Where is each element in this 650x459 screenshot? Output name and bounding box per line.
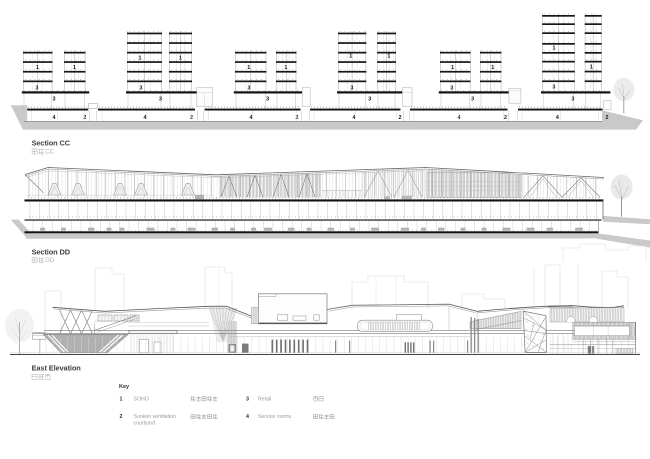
svg-text:Section CC: Section CC xyxy=(32,138,71,147)
svg-text:3: 3 xyxy=(351,85,354,91)
svg-text:1: 1 xyxy=(179,55,182,61)
svg-text:3: 3 xyxy=(53,96,56,102)
svg-text:2: 2 xyxy=(83,115,86,121)
svg-text:Retail: Retail xyxy=(258,396,271,402)
svg-text:1: 1 xyxy=(139,55,142,61)
svg-text:courtyard: courtyard xyxy=(134,421,156,427)
svg-text:1: 1 xyxy=(36,65,39,71)
svg-text:3: 3 xyxy=(140,85,143,91)
svg-text:Section DD: Section DD xyxy=(32,247,71,256)
svg-text:1: 1 xyxy=(120,396,123,402)
svg-text:3: 3 xyxy=(368,96,371,102)
svg-text:3: 3 xyxy=(159,96,162,102)
svg-text:4: 4 xyxy=(246,414,249,420)
svg-text:2: 2 xyxy=(120,414,123,420)
svg-text:4: 4 xyxy=(250,115,253,121)
svg-text:3: 3 xyxy=(553,84,556,90)
svg-text:1: 1 xyxy=(451,65,454,71)
svg-text:3: 3 xyxy=(248,85,251,91)
svg-text:SOHO: SOHO xyxy=(134,396,149,402)
svg-text:DD: DD xyxy=(45,257,54,264)
svg-text:Sunken ventilation: Sunken ventilation xyxy=(134,414,177,420)
svg-text:1: 1 xyxy=(284,65,287,71)
svg-text:2: 2 xyxy=(504,115,507,121)
svg-text:2: 2 xyxy=(399,115,402,121)
svg-text:2: 2 xyxy=(606,115,609,121)
svg-text:1: 1 xyxy=(590,64,593,70)
svg-text:4: 4 xyxy=(556,115,559,121)
svg-text:3: 3 xyxy=(571,96,574,102)
svg-text:Key: Key xyxy=(119,384,130,390)
svg-text:4: 4 xyxy=(144,115,147,121)
svg-text:East Elevation: East Elevation xyxy=(32,364,82,373)
svg-text:1: 1 xyxy=(491,65,494,71)
svg-text:3: 3 xyxy=(36,85,39,91)
svg-text:1: 1 xyxy=(553,45,556,51)
svg-text:1: 1 xyxy=(387,53,390,59)
svg-text:CC: CC xyxy=(45,149,54,156)
svg-text:3: 3 xyxy=(471,96,474,102)
svg-text:1: 1 xyxy=(247,65,250,71)
svg-text:3: 3 xyxy=(451,85,454,91)
svg-text:3: 3 xyxy=(266,96,269,102)
svg-text:2: 2 xyxy=(296,115,299,121)
svg-text:1: 1 xyxy=(73,65,76,71)
svg-text:1: 1 xyxy=(349,53,352,59)
svg-text:4: 4 xyxy=(53,115,56,121)
svg-text:3: 3 xyxy=(246,396,249,402)
svg-text:Service rooms: Service rooms xyxy=(258,414,292,420)
svg-text:2: 2 xyxy=(190,115,193,121)
